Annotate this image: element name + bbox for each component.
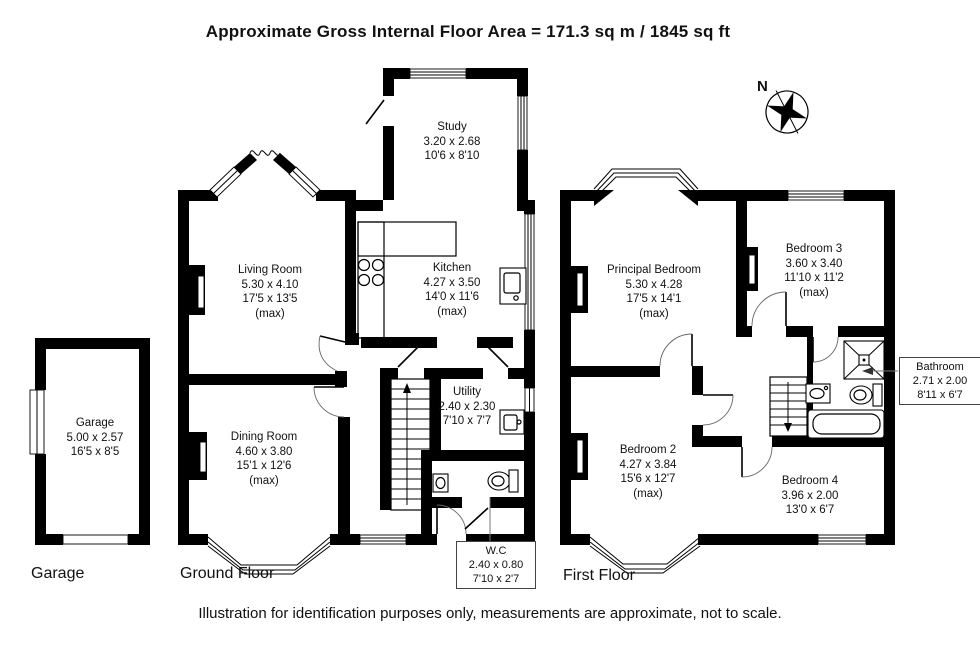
page-title: Approximate Gross Internal Floor Area = … [206,22,731,42]
compass-north-label: N [757,78,768,95]
room-imperial: 11'10 x 11'2 [784,271,844,286]
room-imperial: 13'0 x 6'7 [782,503,839,518]
room-metric: 2.40 x 0.80 [460,558,532,572]
room-name: Bedroom 3 [784,242,844,257]
room-name: Kitchen [424,261,481,276]
room-max: (max) [620,487,677,502]
room-label-study: Study 3.20 x 2.68 10'6 x 8'10 [424,120,481,164]
room-name: Garage [67,416,124,431]
room-name: Bedroom 4 [782,474,839,489]
garage-door-opening [63,535,128,544]
room-label-living: Living Room 5.30 x 4.10 17'5 x 13'5 (max… [238,263,302,321]
hob-icon [359,260,384,286]
room-max: (max) [238,307,302,322]
hall-window-icon [360,535,406,544]
room-imperial: 8'11 x 6'7 [903,388,977,402]
room-name: W.C [460,544,532,558]
bedroom2-fireplace-icon [571,433,588,480]
study-door-leaf [366,100,384,124]
hall-door-leaf [398,346,419,367]
living-room-bay-window-icon [210,151,320,197]
dining-fireplace-icon [189,432,207,480]
room-metric: 4.27 x 3.84 [620,458,677,473]
kitchen-sink-icon [500,268,526,304]
garage-window-icon [30,390,44,454]
utility-door-leaf [487,346,508,367]
room-imperial: 17'5 x 13'5 [238,292,302,307]
living-room-door-icon [319,333,359,371]
room-name: Principal Bedroom [607,263,701,278]
study-top-window-icon [410,69,466,78]
ground-floor-plan [178,68,535,574]
room-metric: 3.96 x 2.00 [782,489,839,504]
bathroom-door-icon [813,337,838,362]
room-max: (max) [784,286,844,301]
bathroom-label-box: Bathroom 2.71 x 2.00 8'11 x 6'7 [899,357,980,405]
dining-door-icon [314,387,344,417]
wc-label-box: W.C 2.40 x 0.80 7'10 x 2'7 [456,541,536,589]
room-imperial: 16'5 x 8'5 [67,445,124,460]
floor-label-garage: Garage [31,565,84,583]
wc-basin-icon [433,474,448,492]
room-max: (max) [231,474,297,489]
principal-bay-window-icon [594,169,698,206]
room-label-kitchen: Kitchen 4.27 x 3.50 14'0 x 11'6 (max) [424,261,481,319]
room-name: Utility [439,385,496,400]
room-label-garage: Garage 5.00 x 2.57 16'5 x 8'5 [67,416,124,460]
room-imperial: 10'6 x 8'10 [424,149,481,164]
room-max: (max) [607,307,701,322]
study-side-window-icon [518,96,527,150]
room-metric: 3.20 x 2.68 [424,135,481,150]
room-metric: 2.71 x 2.00 [903,374,977,388]
room-label-bed2: Bedroom 2 4.27 x 3.84 15'6 x 12'7 (max) [620,443,677,501]
room-label-utility: Utility 2.40 x 2.30 7'10 x 7'7 [439,385,496,429]
room-name: Living Room [238,263,302,278]
room-name: Study [424,120,481,135]
room-imperial: 15'6 x 12'7 [620,472,677,487]
shower-icon [844,341,884,379]
wc-toilet-icon [488,470,518,492]
room-label-principal: Principal Bedroom 5.30 x 4.28 17'5 x 14'… [607,263,701,321]
bedroom2-door-icon [703,395,733,425]
floor-label-first: First Floor [563,567,635,585]
wc-door-leaf [465,508,488,529]
bedroom4-window-icon [818,535,866,544]
room-name: Bathroom [903,360,977,374]
principal-door-icon [660,334,692,366]
disclaimer-text: Illustration for identification purposes… [198,605,781,622]
front-door-icon [437,505,466,534]
room-imperial: 7'10 x 2'7 [460,572,532,586]
bathtub-icon [808,410,884,438]
principal-fireplace-icon [571,266,588,313]
utility-sink-icon [500,410,524,434]
room-metric: 5.00 x 2.57 [67,431,124,446]
bedroom3-window-icon [788,191,844,200]
bedroom3-fireplace-icon [747,247,758,291]
room-metric: 5.30 x 4.10 [238,278,302,293]
bedroom3-door-icon [752,292,786,326]
room-name: Bedroom 2 [620,443,677,458]
utility-window-icon [525,388,534,412]
room-metric: 5.30 x 4.28 [607,278,701,293]
room-imperial: 15'1 x 12'6 [231,459,297,474]
room-max: (max) [424,305,481,320]
room-metric: 2.40 x 2.30 [439,400,496,415]
room-metric: 4.60 x 3.80 [231,445,297,460]
room-name: Dining Room [231,430,297,445]
room-imperial: 7'10 x 7'7 [439,414,496,429]
living-fireplace-icon [187,265,205,315]
bathroom-sink-icon [806,384,830,403]
room-metric: 4.27 x 3.50 [424,276,481,291]
room-label-bed3: Bedroom 3 3.60 x 3.40 11'10 x 11'2 (max) [784,242,844,300]
room-label-bed4: Bedroom 4 3.96 x 2.00 13'0 x 6'7 [782,474,839,518]
compass-icon [761,86,814,139]
room-label-dining: Dining Room 4.60 x 3.80 15'1 x 12'6 (max… [231,430,297,488]
floorplan-page: { "title": "Approximate Gross Internal F… [0,0,980,653]
bedroom4-door-icon [742,447,772,477]
room-imperial: 14'0 x 11'6 [424,290,481,305]
room-imperial: 17'5 x 14'1 [607,292,701,307]
floor-label-ground: Ground Floor [180,565,274,583]
stairs-first-icon [770,377,807,436]
room-metric: 3.60 x 3.40 [784,257,844,272]
bathroom-toilet-icon [850,384,882,406]
first-floor-plan [560,169,898,573]
